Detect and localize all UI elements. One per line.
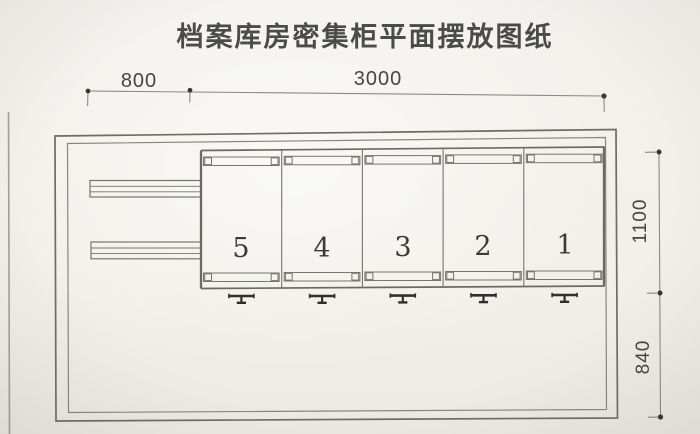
cabinet-bottom-rails <box>204 271 603 282</box>
cabinet-block-outline <box>201 147 605 289</box>
cabinet-bay-dividers <box>282 148 524 288</box>
cabinet-number-1: 1 <box>545 230 585 262</box>
dimension-label-1100: 1100 <box>629 179 653 263</box>
dimension-label-800: 800 <box>109 70 169 92</box>
scanned-floor-plan: 档案库房密集柜平面摆放图纸 800 3000 1100 840 5 4 3 2 … <box>0 0 700 434</box>
cabinet-number-2: 2 <box>463 231 503 263</box>
track-stop-symbol <box>471 293 496 302</box>
cabinet-number-4: 4 <box>302 233 342 265</box>
scan-edge-line <box>9 112 10 434</box>
track-stop-symbol <box>390 293 415 302</box>
cabinet-top-rails <box>204 154 603 165</box>
dimension-label-3000: 3000 <box>338 68 418 90</box>
room-wall-inner <box>68 138 607 413</box>
top-dimension-line <box>88 90 605 112</box>
drawing-title: 档案库房密集柜平面摆放图纸 <box>150 20 580 56</box>
dimension-label-840: 840 <box>632 315 656 399</box>
cabinet-number-3: 3 <box>383 232 423 264</box>
track-stop-symbols <box>229 293 577 303</box>
track-stop-symbol <box>229 294 254 303</box>
track-stop-symbol <box>552 293 577 302</box>
cabinet-number-5: 5 <box>221 233 261 265</box>
rail-track-lower <box>91 242 201 259</box>
room-wall-outer <box>55 130 618 422</box>
floor-plan-linework <box>0 0 700 434</box>
rail-track-upper <box>90 181 201 198</box>
track-stop-symbol <box>310 294 335 303</box>
